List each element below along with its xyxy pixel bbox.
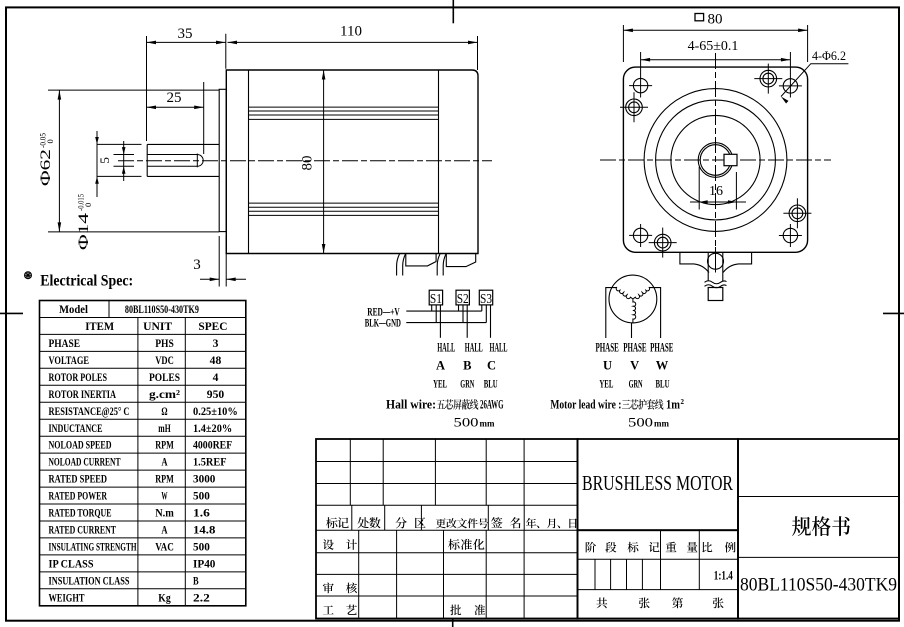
svg-text:B: B <box>193 575 199 587</box>
svg-text:g.cm²: g.cm² <box>149 389 181 401</box>
svg-text:4-65±0.1: 4-65±0.1 <box>688 39 739 54</box>
svg-text:2: 2 <box>681 398 685 406</box>
svg-text:HALL: HALL <box>490 341 508 355</box>
svg-text:Model: Model <box>59 304 88 316</box>
svg-text:mm: mm <box>480 419 495 429</box>
svg-text:BRUSHLESS MOTOR: BRUSHLESS MOTOR <box>582 471 733 495</box>
svg-text:16: 16 <box>709 184 723 199</box>
svg-text:0.25±10%: 0.25±10% <box>193 406 238 418</box>
svg-text:HALL: HALL <box>437 341 455 355</box>
svg-text:35: 35 <box>178 26 193 42</box>
svg-text:500: 500 <box>193 542 210 554</box>
svg-text:BLU: BLU <box>484 376 498 390</box>
svg-text:S3: S3 <box>480 291 492 306</box>
svg-text:26AWG: 26AWG <box>480 397 504 412</box>
svg-text:SPEC: SPEC <box>198 321 227 333</box>
svg-text:IP40: IP40 <box>193 558 216 570</box>
svg-text:Motor lead wire :: Motor lead wire : <box>550 397 621 412</box>
svg-text:A: A <box>161 457 168 469</box>
svg-text:RPM: RPM <box>155 474 174 486</box>
svg-text:500: 500 <box>193 491 210 503</box>
svg-text:-0.05: -0.05 <box>38 133 48 148</box>
svg-text:V: V <box>630 358 639 372</box>
svg-text:S1: S1 <box>430 291 442 306</box>
svg-text:14.8: 14.8 <box>193 525 216 537</box>
svg-text:Ω: Ω <box>161 406 167 418</box>
svg-text:INSULATING STRENGTH: INSULATING STRENGTH <box>49 542 137 554</box>
svg-text:B: B <box>463 358 471 372</box>
svg-text:4: 4 <box>213 372 219 384</box>
svg-text:1.4±20%: 1.4±20% <box>193 423 232 435</box>
svg-text:BLK—GND: BLK—GND <box>365 316 401 330</box>
svg-text:INDUCTANCE: INDUCTANCE <box>49 423 103 435</box>
svg-text:RATED POWER: RATED POWER <box>49 491 108 503</box>
svg-text:4-Φ6.2: 4-Φ6.2 <box>812 48 846 63</box>
svg-text:GRN: GRN <box>460 376 474 390</box>
svg-text:80BL110S50-430TK9: 80BL110S50-430TK9 <box>125 304 199 316</box>
svg-text:110: 110 <box>340 24 362 40</box>
svg-text:Kg: Kg <box>158 592 171 604</box>
svg-text:POLES: POLES <box>149 372 180 384</box>
svg-text:NOLOAD CURRENT: NOLOAD CURRENT <box>49 457 121 469</box>
svg-text:3: 3 <box>213 338 219 350</box>
svg-text:Electrical Spec:: Electrical Spec: <box>40 273 133 290</box>
svg-text:mH: mH <box>158 423 170 435</box>
svg-text:NOLOAD SPEED: NOLOAD SPEED <box>49 440 112 452</box>
svg-text:PHASE: PHASE <box>650 341 673 355</box>
svg-text:RATED SPEED: RATED SPEED <box>49 474 108 486</box>
svg-text:1.5REF: 1.5REF <box>193 457 227 469</box>
svg-text:80: 80 <box>708 12 723 28</box>
svg-text:500: 500 <box>454 414 479 429</box>
svg-text:RPM: RPM <box>155 440 174 452</box>
svg-text:ROTOR INERTIA: ROTOR INERTIA <box>49 389 117 401</box>
svg-text:RESISTANCE@25° C: RESISTANCE@25° C <box>49 406 130 418</box>
svg-text:Φ14: Φ14 <box>76 212 92 250</box>
svg-text:BLU: BLU <box>656 376 670 390</box>
svg-text:PHASE: PHASE <box>595 341 618 355</box>
svg-text:4000REF: 4000REF <box>193 440 232 452</box>
svg-text:HALL: HALL <box>465 341 483 355</box>
svg-text:2.2: 2.2 <box>193 592 210 604</box>
svg-text:S2: S2 <box>457 291 469 306</box>
svg-text:Φ62: Φ62 <box>38 149 54 186</box>
svg-text:3000: 3000 <box>193 474 216 486</box>
svg-text:VDC: VDC <box>155 355 174 367</box>
svg-text:-0.015: -0.015 <box>76 194 86 211</box>
svg-text:Hall wire:: Hall wire: <box>386 397 436 412</box>
svg-text:INSULATION CLASS: INSULATION CLASS <box>49 575 130 587</box>
svg-text:W: W <box>161 491 167 503</box>
svg-text:VAC: VAC <box>155 542 174 554</box>
svg-text:RATED CURRENT: RATED CURRENT <box>49 525 117 537</box>
svg-text:25: 25 <box>167 90 182 106</box>
svg-text:mm: mm <box>654 419 669 429</box>
svg-text:U: U <box>603 358 612 372</box>
svg-text:80: 80 <box>300 156 316 171</box>
svg-text:PHASE: PHASE <box>623 341 646 355</box>
svg-text:950: 950 <box>207 389 225 401</box>
svg-text:500: 500 <box>628 414 653 429</box>
svg-text:IP CLASS: IP CLASS <box>49 558 94 570</box>
svg-text:48: 48 <box>210 355 222 367</box>
svg-text:5: 5 <box>97 157 112 164</box>
svg-text:UNIT: UNIT <box>143 321 172 333</box>
svg-text:1m: 1m <box>666 397 680 412</box>
svg-text:80BL110S50-430TK9: 80BL110S50-430TK9 <box>740 575 897 596</box>
svg-text:VOLTAGE: VOLTAGE <box>49 355 90 367</box>
svg-text:A: A <box>161 525 168 537</box>
svg-text:A: A <box>436 358 445 372</box>
svg-text:ITEM: ITEM <box>85 321 114 333</box>
svg-text:N.m: N.m <box>155 508 174 520</box>
svg-text:ROTOR POLES: ROTOR POLES <box>49 372 108 384</box>
svg-text:WEIGHT: WEIGHT <box>49 592 85 604</box>
svg-text:YEL: YEL <box>599 376 613 390</box>
svg-text:W: W <box>656 358 669 372</box>
svg-text:GRN: GRN <box>629 376 643 390</box>
svg-text:PHS: PHS <box>155 338 174 350</box>
svg-text:C: C <box>487 358 496 372</box>
svg-text:3: 3 <box>193 257 201 273</box>
svg-text:RATED TORQUE: RATED TORQUE <box>49 508 112 520</box>
svg-text:PHASE: PHASE <box>49 338 81 350</box>
svg-text:YEL: YEL <box>433 376 447 390</box>
svg-text:1:1.4: 1:1.4 <box>714 569 734 583</box>
svg-text:1.6: 1.6 <box>193 508 210 520</box>
